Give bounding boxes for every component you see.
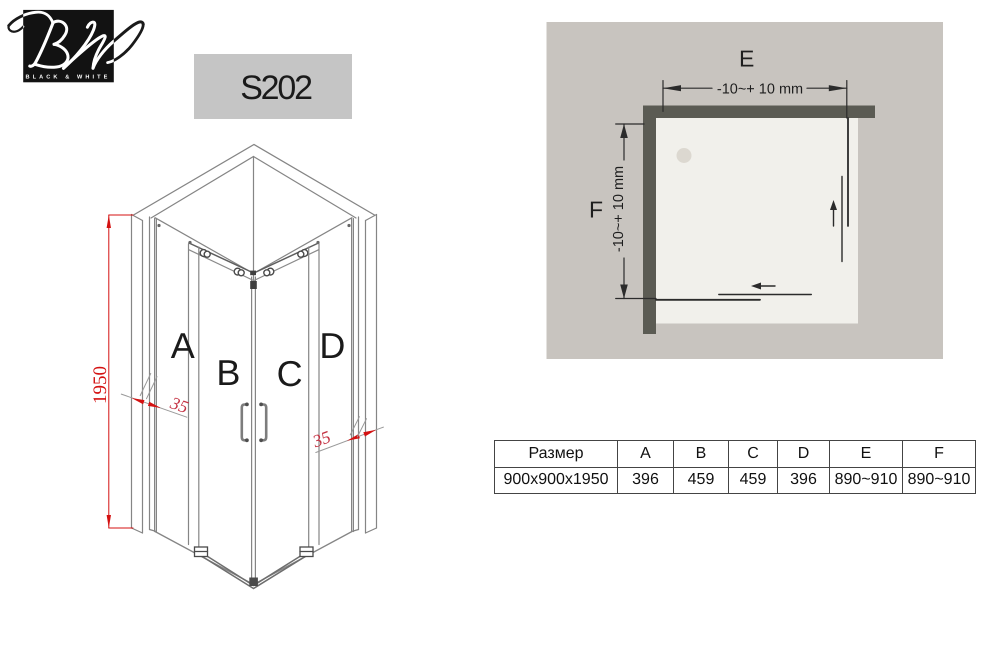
svg-text:B: B bbox=[216, 352, 240, 393]
svg-text:35: 35 bbox=[167, 392, 191, 417]
svg-text:E: E bbox=[739, 46, 754, 72]
svg-text:D: D bbox=[319, 325, 345, 366]
svg-text:1950: 1950 bbox=[90, 366, 111, 404]
svg-text:-10~+ 10 mm: -10~+ 10 mm bbox=[717, 82, 803, 98]
svg-text:35: 35 bbox=[309, 426, 333, 451]
svg-text:-10~+ 10 mm: -10~+ 10 mm bbox=[611, 166, 627, 252]
svg-text:A: A bbox=[171, 325, 195, 366]
svg-text:F: F bbox=[589, 197, 603, 223]
svg-text:C: C bbox=[277, 353, 303, 394]
